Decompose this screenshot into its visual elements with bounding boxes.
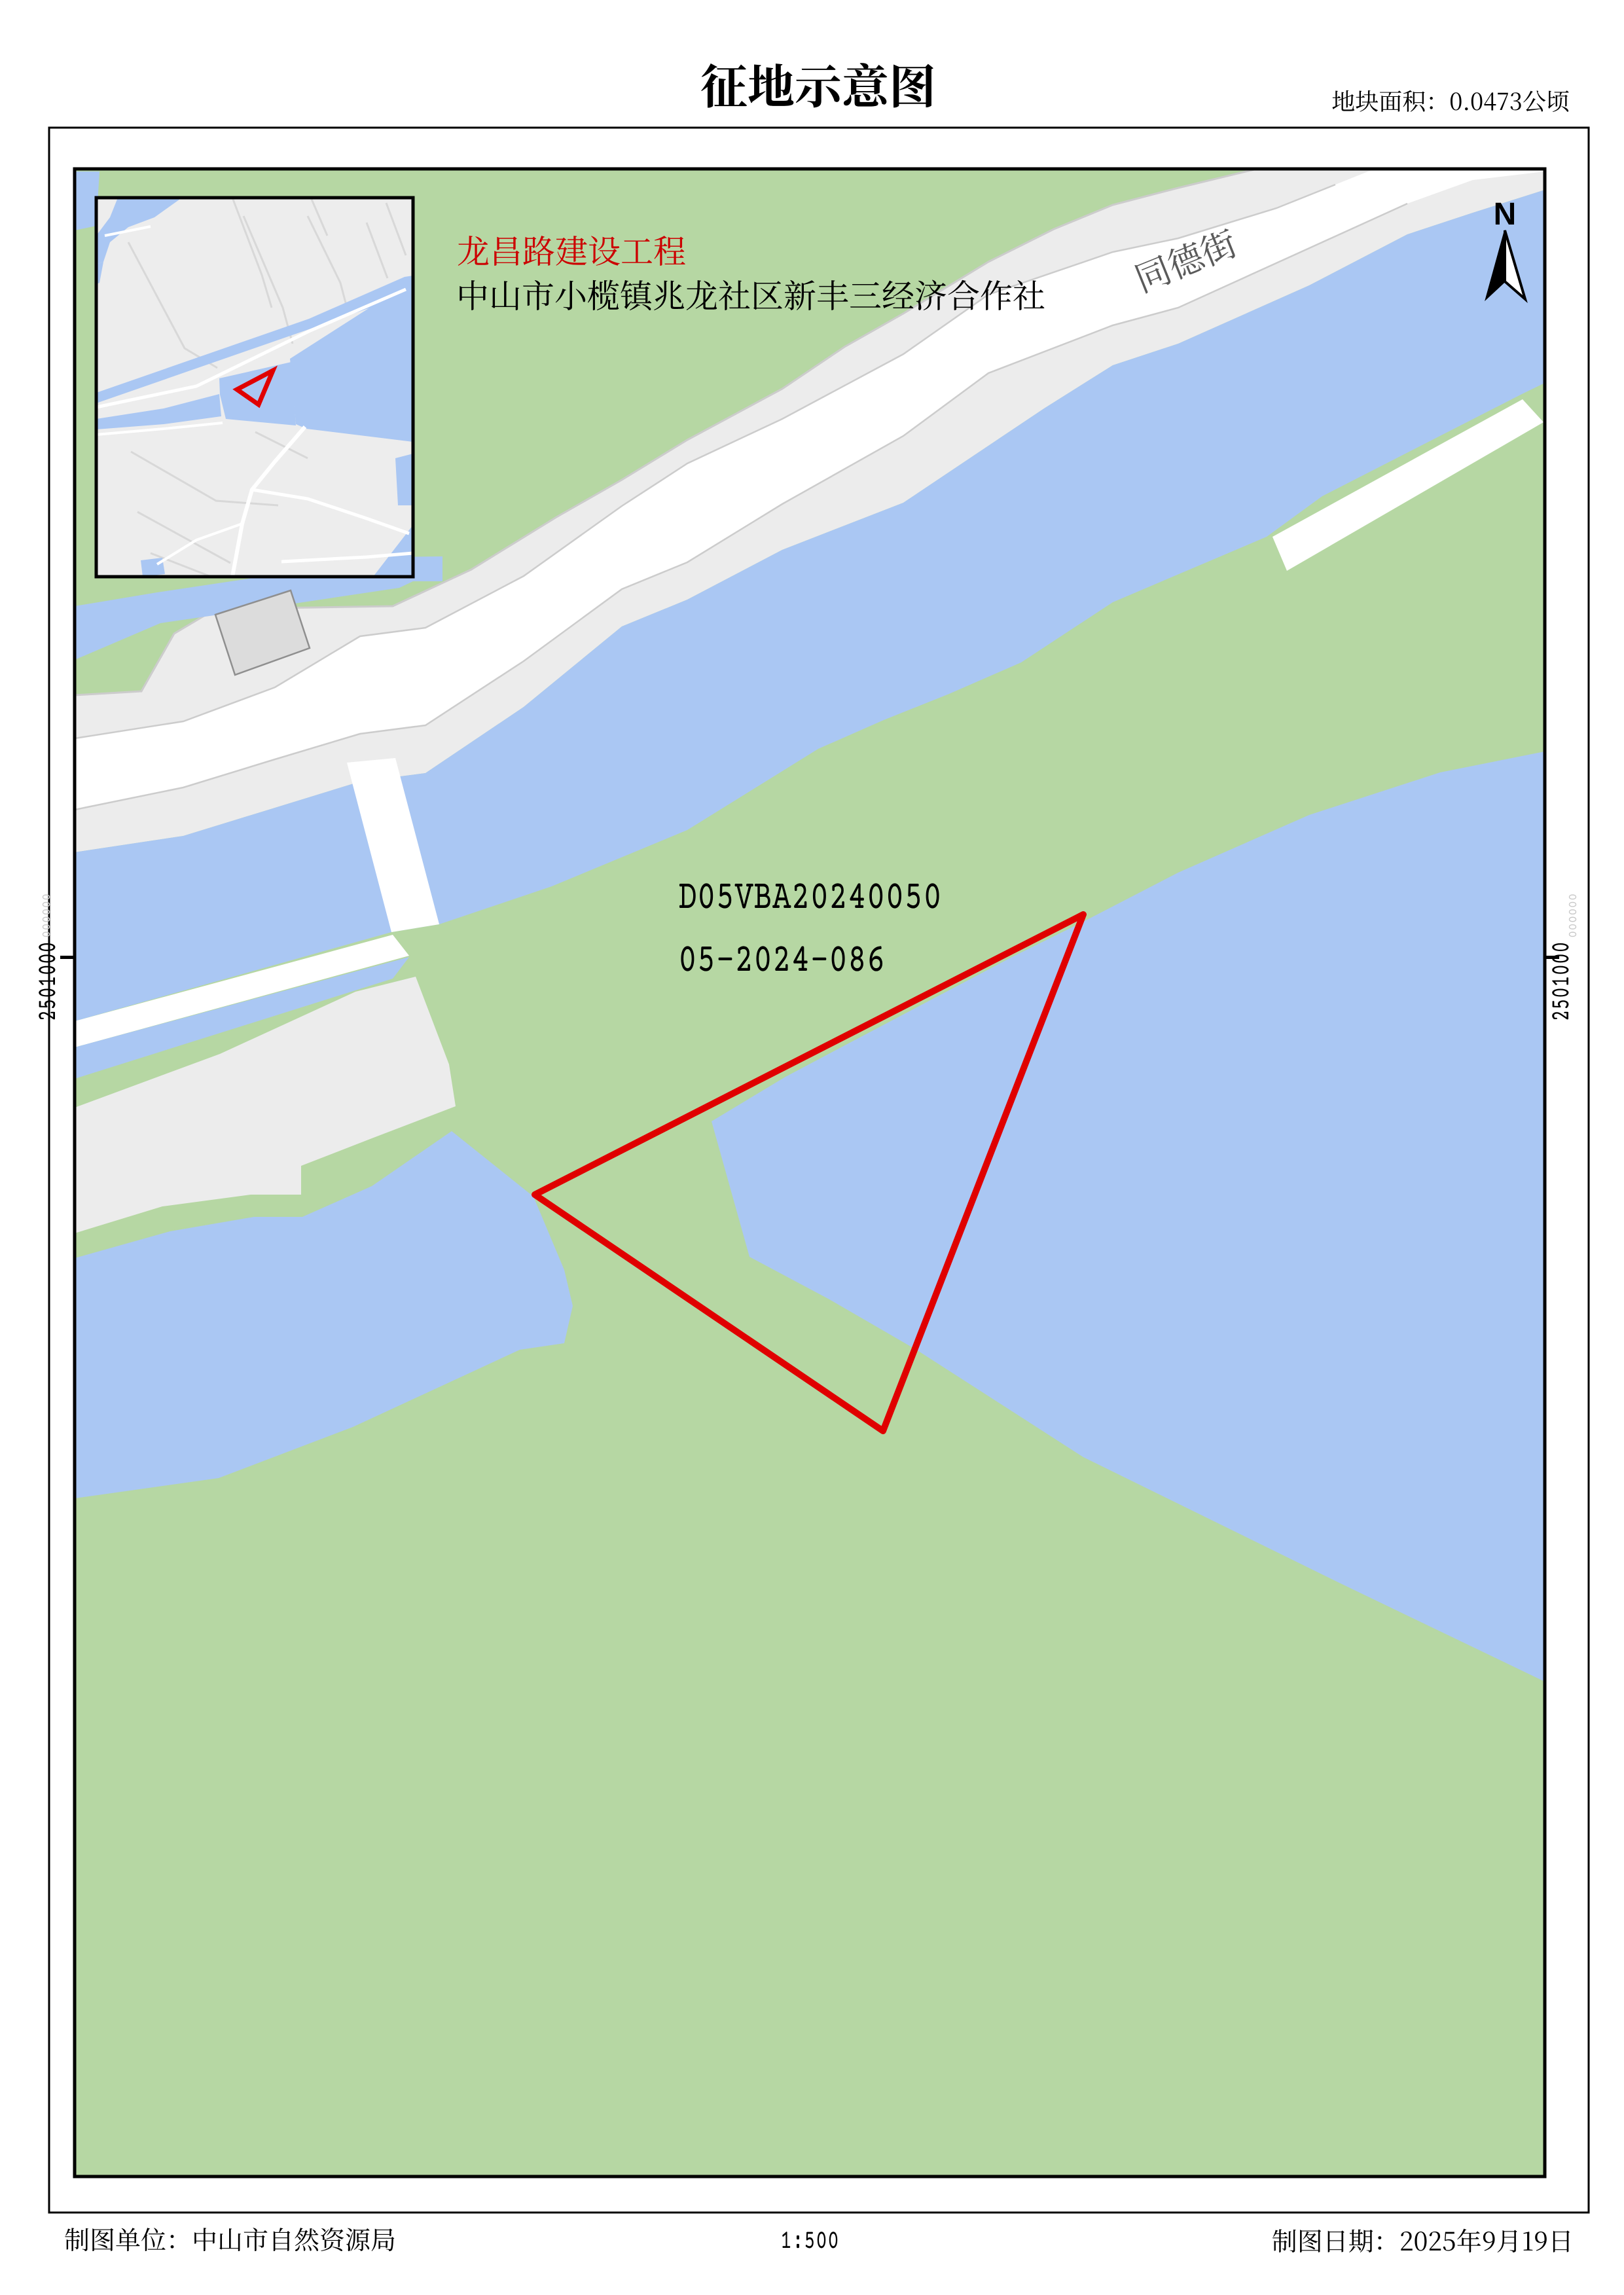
svg-text:N: N xyxy=(1494,197,1517,232)
